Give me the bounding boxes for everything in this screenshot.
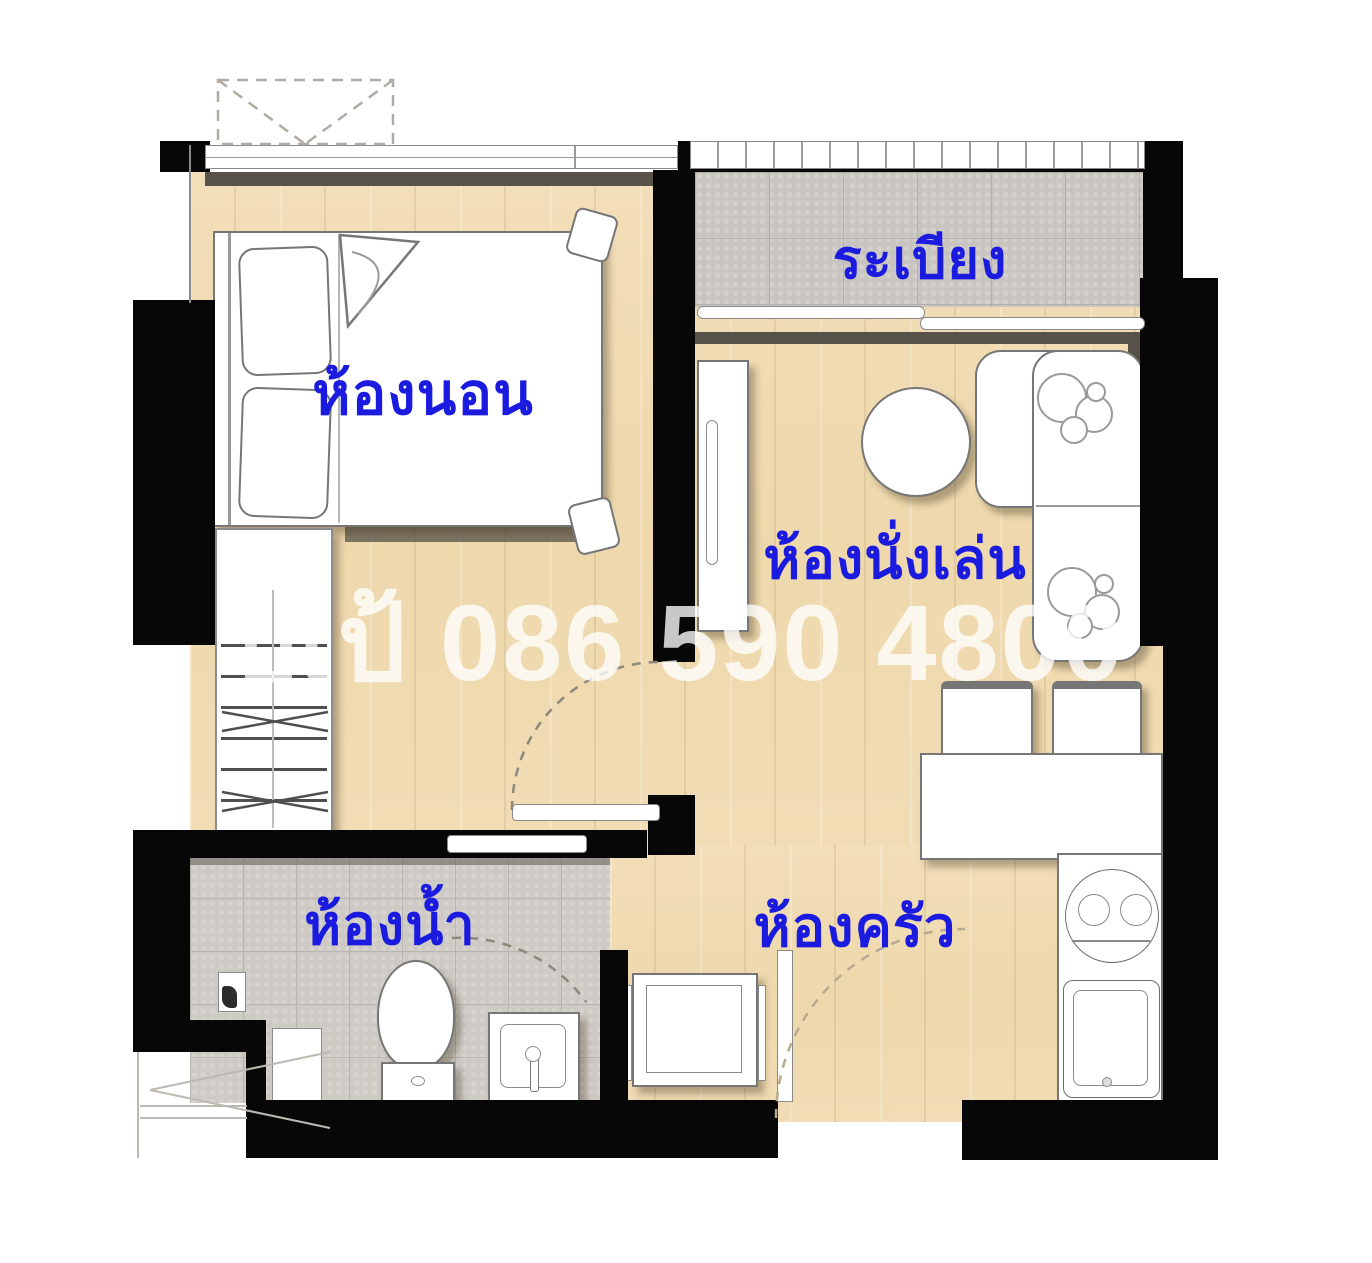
wall-left-upper <box>133 300 215 645</box>
appliance-rail <box>758 985 766 1081</box>
kitchen-sink <box>1063 980 1160 1098</box>
kitchen-sink-basin <box>1073 990 1148 1086</box>
bathroom-door-leaf <box>447 835 587 853</box>
bathroom-top-inner-line <box>190 858 610 865</box>
bedroom-window <box>205 145 678 169</box>
bedroom-door-leaf <box>512 804 660 821</box>
living-top-lining <box>695 332 1143 344</box>
toilet-tank <box>381 1062 455 1104</box>
round-table <box>861 387 971 497</box>
window-joint <box>574 146 576 168</box>
kitchen-label: ห้องครัว <box>620 882 1090 971</box>
bathroom-sink <box>488 1012 580 1102</box>
washing-machine-door <box>646 985 742 1073</box>
balcony-label: ระเบียง <box>695 216 1145 302</box>
sofa-seam <box>1036 505 1140 507</box>
bathroom-niche <box>272 1028 322 1102</box>
wardrobe-midline <box>272 590 274 828</box>
wall-top-left-corner <box>160 141 210 172</box>
wall-niche-bottom <box>600 1100 778 1158</box>
wall-balcony-right <box>1143 141 1183 281</box>
bathroom-label: ห้องน้ำ <box>190 880 590 969</box>
balcony-sliding-door-panel <box>697 306 925 319</box>
floor-plan: ระเบียง ห้องนอน ห้องนั่งเล่น ห้องน้ำ ห้อ… <box>0 0 1372 1263</box>
ac-ledge-icon <box>218 80 393 144</box>
bedroom-label: ห้องนอน <box>213 347 633 440</box>
bathroom-faucet-knob <box>525 1046 541 1062</box>
bedroom-left-wall-line <box>189 145 191 303</box>
wall-right-living <box>1140 278 1218 646</box>
toilet-flush-button <box>411 1076 425 1086</box>
bedroom-top-lining <box>205 172 660 186</box>
balcony-railing <box>690 141 1145 169</box>
wall-bottom-right <box>962 1100 1218 1160</box>
wall-right-kitchen <box>1163 646 1218 1122</box>
bed-shadow <box>345 527 603 542</box>
wall-niche-left <box>600 950 628 1122</box>
kitchen-faucet <box>1102 1077 1112 1087</box>
shower-head-icon <box>222 986 237 1008</box>
wall-left-lower <box>133 830 190 1052</box>
balcony-sliding-door-panel <box>920 317 1145 330</box>
living-room-label: ห้องนั่งเล่น <box>660 514 1130 603</box>
wardrobe-slats <box>221 616 327 826</box>
washing-machine <box>632 973 758 1087</box>
window-midline <box>206 157 677 158</box>
wardrobe <box>215 528 333 834</box>
bar-counter <box>920 753 1163 860</box>
toilet-bowl <box>377 960 455 1070</box>
entry-door-jamb <box>777 950 793 1102</box>
stove-burner <box>1120 894 1152 926</box>
wall-bottom-left <box>246 1100 626 1158</box>
